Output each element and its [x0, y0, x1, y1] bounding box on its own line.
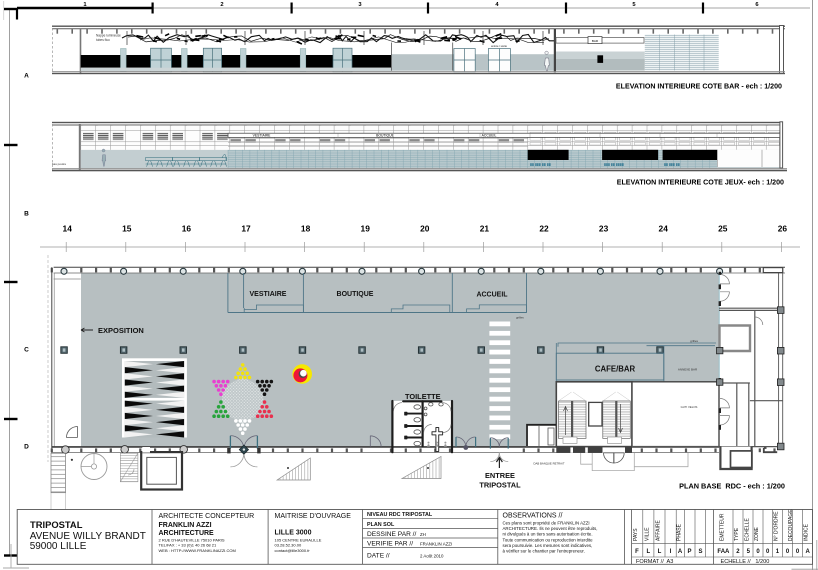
- svg-text:17: 17: [241, 223, 251, 233]
- svg-text:2 Août 2010: 2 Août 2010: [420, 554, 444, 559]
- svg-text:EXPOSITION: EXPOSITION: [98, 326, 144, 335]
- svg-text:ARCHITECTURE: ARCHITECTURE: [159, 530, 215, 537]
- svg-text:PAYS: PAYS: [633, 528, 639, 541]
- svg-text:TYPE: TYPE: [734, 527, 740, 541]
- svg-text:ARCHITECTE CONCEPTEUR: ARCHITECTE CONCEPTEUR: [159, 513, 255, 520]
- svg-text:NIVEAU RDC TRIPOSTAL: NIVEAU RDC TRIPOSTAL: [367, 512, 433, 518]
- svg-text:24: 24: [659, 223, 669, 233]
- svg-text:16: 16: [182, 223, 192, 233]
- svg-text:ANNEXE BAR: ANNEXE BAR: [678, 368, 698, 372]
- svg-text:2: 2: [220, 2, 223, 8]
- svg-text:VESTIAIRE: VESTIAIRE: [250, 291, 287, 298]
- svg-text:▮▮▮ ▮▮ ▮▮▮▮: ▮▮▮ ▮▮ ▮▮▮▮: [604, 162, 624, 166]
- svg-text:MAITRISE D'OUVRAGE: MAITRISE D'OUVRAGE: [275, 513, 352, 520]
- svg-text:Toute communication ou reprodu: Toute communication ou reproduction inte…: [503, 537, 594, 542]
- svg-text:FAA: FAA: [717, 549, 730, 555]
- svg-text:INDICE: INDICE: [804, 523, 810, 541]
- svg-text:ENTREE: ENTREE: [485, 471, 515, 480]
- svg-text:TRIPOSTAL: TRIPOSTAL: [479, 481, 521, 490]
- svg-text:FRANKLIN AZZI: FRANKLIN AZZI: [420, 542, 452, 547]
- svg-text:14: 14: [63, 223, 73, 233]
- svg-text:WEB : HTTP://WWW.FRANKLINAZZI.: WEB : HTTP://WWW.FRANKLINAZZI.COM: [159, 548, 236, 553]
- svg-text:TOILETTE: TOILETTE: [405, 392, 441, 401]
- svg-text:FRANKLIN AZZI: FRANKLIN AZZI: [159, 522, 212, 529]
- svg-text:BOUTIQUE: BOUTIQUE: [337, 291, 374, 298]
- svg-text:ECHELLE // 1/200: ECHELLE // 1/200: [721, 559, 770, 565]
- svg-text:03.28.52.30.00: 03.28.52.30.00: [275, 543, 302, 548]
- svg-text:bas poutre: bas poutre: [52, 162, 67, 166]
- svg-text:▮▮ ▮▮▮ ▮▮: ▮▮ ▮▮▮ ▮▮: [664, 162, 680, 166]
- svg-text:ZH: ZH: [420, 532, 426, 537]
- svg-text:A: A: [806, 549, 811, 555]
- svg-text:OBSERVATIONS //: OBSERVATIONS //: [503, 513, 563, 520]
- svg-text:grilles: grilles: [516, 316, 524, 320]
- svg-text:TRIPOSTAL: TRIPOSTAL: [30, 519, 83, 530]
- svg-text:15: 15: [122, 223, 132, 233]
- svg-text:ACCUEIL: ACCUEIL: [476, 292, 508, 299]
- svg-text:21: 21: [480, 223, 490, 233]
- svg-text:DECOUPAGE: DECOUPAGE: [788, 509, 794, 541]
- svg-text:F: F: [635, 549, 639, 555]
- svg-text:Ces plans sont propriété de FR: Ces plans sont propriété de FRANKLIN AZZ…: [503, 521, 590, 526]
- svg-text:VERIFIE PAR //: VERIFIE PAR //: [367, 541, 413, 548]
- svg-text:ELEVATION INTERIEURE COTE BAR: ELEVATION INTERIEURE COTE BAR - ech : 1/…: [616, 83, 782, 91]
- svg-text:ni divulgués à un tiers sans a: ni divulgués à un tiers sans autorisatio…: [503, 532, 593, 537]
- svg-text:N° D'ORDRE: N° D'ORDRE: [773, 511, 779, 541]
- svg-text:PLAN BASE RDC - ech : 1/200: PLAN BASE RDC - ech : 1/200: [679, 482, 785, 491]
- svg-text:ELEVATION INTERIEURE COTE JEUX: ELEVATION INTERIEURE COTE JEUX- ech : 1/…: [617, 178, 784, 186]
- svg-text:PLAN SOL: PLAN SOL: [367, 522, 395, 528]
- svg-text:BAR: BAR: [592, 39, 599, 43]
- svg-text:L: L: [658, 549, 662, 555]
- svg-text:AFFAIRE: AFFAIRE: [656, 519, 662, 541]
- svg-text:23: 23: [599, 223, 609, 233]
- svg-text:sera poursuivie. Les mesures s: sera poursuivie. Les mesures sont indica…: [503, 543, 593, 548]
- svg-text:PHASE: PHASE: [677, 523, 683, 541]
- svg-text:C: C: [24, 347, 29, 354]
- svg-text:tubes fluo: tubes fluo: [96, 38, 110, 42]
- svg-text:19: 19: [361, 223, 371, 233]
- svg-text:P: P: [687, 549, 691, 555]
- svg-text:VILLE: VILLE: [644, 527, 650, 541]
- svg-text:DAB BANQUE RETRAIT: DAB BANQUE RETRAIT: [533, 462, 564, 466]
- svg-text:VESTIAIRE: VESTIAIRE: [253, 134, 271, 138]
- svg-text:LILLE 3000: LILLE 3000: [275, 530, 312, 537]
- svg-text:EMETTEUR: EMETTEUR: [719, 513, 725, 541]
- svg-text:contact@lille3000.fr: contact@lille3000.fr: [275, 548, 311, 553]
- svg-text:59000 LILLE: 59000 LILLE: [30, 541, 87, 552]
- svg-text:22: 22: [539, 223, 549, 233]
- svg-text:DESSINE PAR //: DESSINE PAR //: [367, 531, 417, 538]
- svg-text:CAFE/BAR: CAFE/BAR: [595, 365, 636, 374]
- svg-text:TEL/FAX : + 33 (0)1 40 26 68 2: TEL/FAX : + 33 (0)1 40 26 68 21: [159, 543, 217, 548]
- svg-text:▮▮ ▮▮▮ ▮▮ ▮▮: ▮▮ ▮▮▮ ▮▮ ▮▮: [530, 162, 551, 166]
- svg-text:D: D: [24, 444, 29, 451]
- svg-text:BOUTIQUE: BOUTIQUE: [376, 134, 394, 138]
- svg-text:B: B: [24, 211, 29, 218]
- svg-text:ECHELLE: ECHELLE: [744, 518, 750, 541]
- svg-text:grilles: grilles: [690, 339, 698, 343]
- svg-text:ARCHITECTURE. Ils ne peuvent ê: ARCHITECTURE. Ils ne peuvent être reprod…: [503, 526, 598, 531]
- svg-text:S: S: [698, 549, 702, 555]
- svg-text:ACCUEIL: ACCUEIL: [482, 134, 497, 138]
- svg-text:à vérifier sur le chantier par: à vérifier sur le chantier par l'entrepr…: [503, 549, 585, 554]
- svg-text:DATE //: DATE //: [367, 553, 390, 560]
- svg-text:FORMAT // A3: FORMAT // A3: [636, 559, 673, 565]
- svg-text:A: A: [24, 73, 29, 80]
- svg-text:A: A: [678, 549, 683, 555]
- svg-text:25: 25: [718, 223, 728, 233]
- svg-text:ZONE: ZONE: [754, 526, 760, 541]
- svg-text:L: L: [646, 549, 650, 555]
- svg-text:26: 26: [778, 223, 788, 233]
- svg-text:18: 18: [301, 223, 311, 233]
- svg-text:GUTI VELOS: GUTI VELOS: [681, 405, 698, 409]
- svg-text:TOILETTE: TOILETTE: [404, 37, 417, 41]
- svg-text:entrée / sortie: entrée / sortie: [491, 44, 507, 48]
- svg-text:20: 20: [420, 223, 430, 233]
